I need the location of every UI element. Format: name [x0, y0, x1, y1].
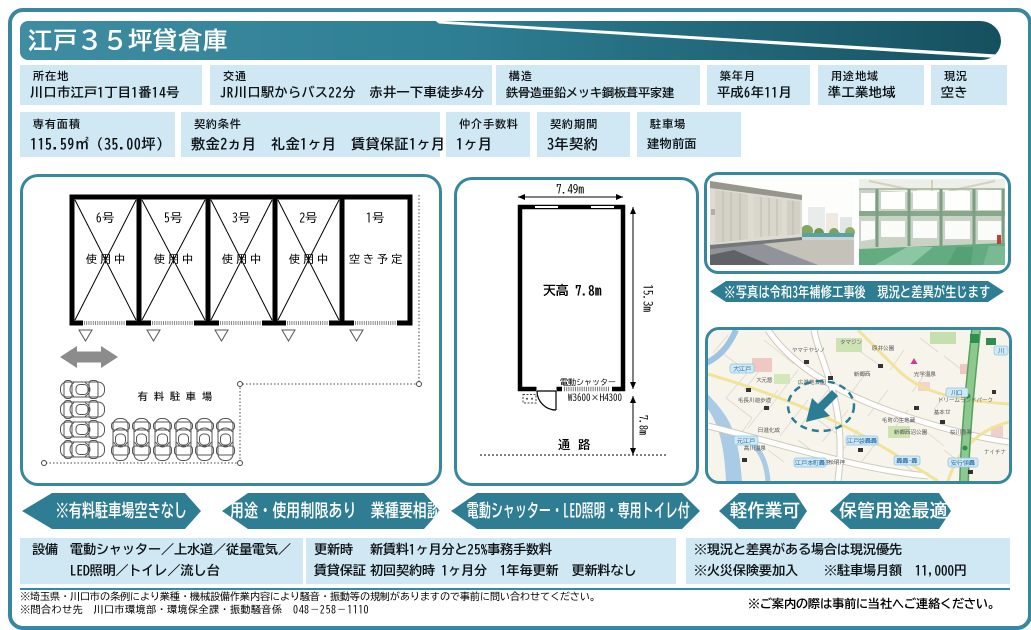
svg-text:3号: 3号	[232, 212, 250, 224]
svg-text:通路: 通路	[558, 438, 598, 451]
svg-text:有料駐車場: 有料駐車場	[137, 391, 218, 402]
svg-text:ナイチナ: ナイチナ	[984, 449, 1006, 455]
svg-text:大元意: 大元意	[755, 377, 773, 384]
svg-text:ヤマテヤシノ: ヤマテヤシノ	[792, 347, 825, 353]
svg-text:7.8m: 7.8m	[638, 415, 648, 435]
svg-text:基本せ: 基本せ	[933, 409, 951, 415]
svg-text:タマジン: タマジン	[840, 339, 862, 345]
svg-text:元江戸: 元江戸	[736, 437, 755, 445]
svg-text:安行領轟: 安行領轟	[951, 459, 975, 467]
svg-text:江戸袋轟轟: 江戸袋轟轟	[847, 437, 877, 444]
svg-text:ドリームランドパーク: ドリームランドパーク	[938, 397, 993, 403]
svg-text:電動シャッター: 電動シャッター	[560, 377, 616, 387]
svg-text:天高 7.8m: 天高 7.8m	[543, 284, 602, 297]
svg-text:5号: 5号	[164, 212, 182, 224]
svg-text:使用中: 使用中	[86, 253, 128, 265]
svg-text:江戸本町轟: 江戸本町轟	[795, 459, 825, 466]
svg-text:轟轟·轟: 轟轟·轟	[897, 458, 918, 464]
svg-text:毛長川遊歩道: 毛長川遊歩道	[738, 397, 772, 404]
svg-text:桜川香薬: 桜川香薬	[950, 429, 973, 436]
svg-text:毛町の生地蔵: 毛町の生地蔵	[882, 417, 916, 423]
svg-text:6号: 6号	[96, 212, 114, 224]
svg-text:空き予定: 空き予定	[349, 253, 405, 265]
svg-text:15.3m: 15.3m	[642, 284, 653, 312]
svg-text:新郷西沼公園: 新郷西沼公園	[893, 429, 927, 435]
svg-text:日進化成: 日進化成	[758, 427, 781, 434]
svg-text:2号: 2号	[299, 212, 317, 224]
svg-text:高川温泉: 高川温泉	[744, 445, 767, 452]
svg-text:W3600×H4300: W3600×H4300	[567, 393, 622, 403]
svg-text:使用中: 使用中	[222, 253, 264, 265]
svg-text:使用中: 使用中	[289, 253, 331, 265]
svg-text:7.49m: 7.49m	[556, 184, 584, 195]
svg-text:使用中: 使用中	[154, 253, 196, 265]
svg-text:新郷西: 新郷西	[853, 371, 871, 377]
svg-text:原井公園: 原井公園	[871, 345, 894, 351]
svg-text:大江戸: 大江戸	[732, 365, 751, 372]
svg-text:川口: 川口	[951, 390, 963, 396]
svg-text:1号: 1号	[366, 212, 384, 224]
svg-text:川: 川	[998, 348, 1004, 354]
svg-text:光学温泉: 光学温泉	[913, 371, 937, 378]
